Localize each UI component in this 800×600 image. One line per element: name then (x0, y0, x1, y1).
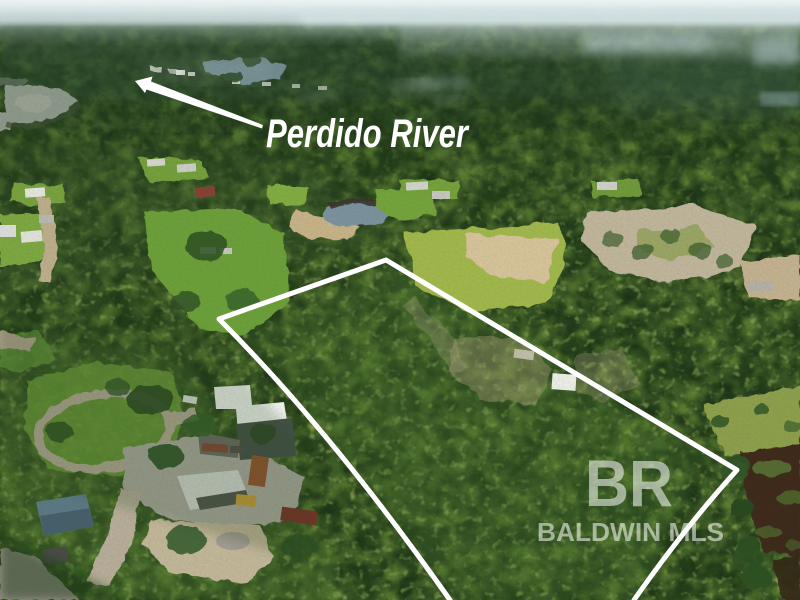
svg-text:BALDWIN MLS: BALDWIN MLS (537, 517, 724, 547)
svg-text:BR: BR (585, 446, 673, 520)
svg-text:Perdido River: Perdido River (266, 112, 470, 156)
